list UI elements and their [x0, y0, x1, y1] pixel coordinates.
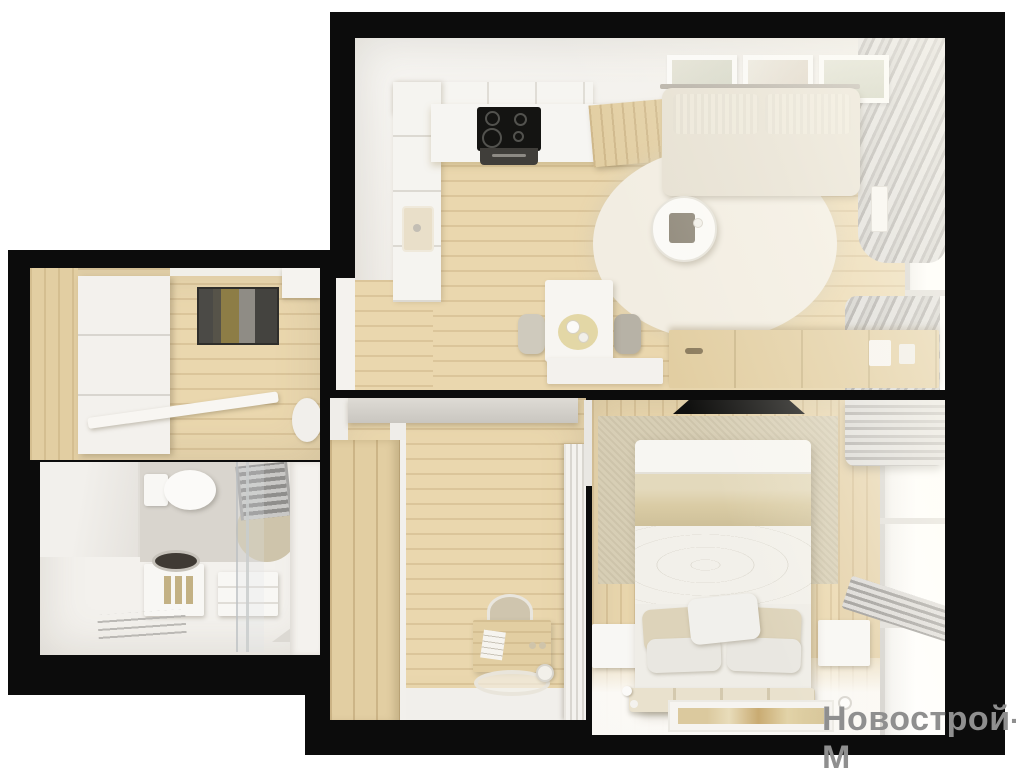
- watermark-text: Новострой-М: [822, 700, 1016, 768]
- nursery-wardrobe: [330, 440, 400, 720]
- dining-bowl: [578, 332, 589, 343]
- dining-chair-right: [614, 314, 641, 354]
- living-room-kitchen: [355, 38, 945, 390]
- floor-lamp: [536, 664, 554, 682]
- bed-pillow-gray-right: [726, 637, 801, 674]
- burner-icon: [513, 131, 524, 142]
- drying-rack: [97, 609, 187, 643]
- coffee-table-cup: [693, 218, 703, 228]
- shower-glass: [236, 462, 264, 652]
- hall-shelf: [282, 268, 320, 298]
- nightstand-right: [818, 620, 870, 666]
- bed: [635, 440, 811, 712]
- kitchen-oven: [480, 148, 538, 165]
- hallway: [30, 268, 320, 460]
- floorplan-canvas: Новострой-М: [0, 0, 1016, 768]
- desk-knob: [529, 642, 536, 649]
- bed-pillow-center: [687, 592, 761, 645]
- bedroom-wall-tv: [673, 400, 805, 414]
- slatted-door: [564, 444, 586, 720]
- hall-doormat: [197, 287, 279, 345]
- bedroom: [592, 400, 945, 735]
- coffee-table-tray: [669, 213, 695, 243]
- toilet-bowl: [164, 470, 216, 510]
- burner-icon: [485, 111, 500, 126]
- nursery-office: [330, 398, 586, 720]
- kitchen-faucet: [413, 224, 421, 232]
- burner-icon: [514, 113, 527, 126]
- console-decor: [899, 344, 915, 364]
- coffee-table: [651, 196, 717, 262]
- sofa-cushion: [673, 94, 759, 134]
- kitchen-cooktop: [477, 107, 541, 151]
- dining-placemat: [558, 314, 598, 350]
- burner-icon: [482, 128, 502, 148]
- bath-right-wall: [290, 462, 320, 655]
- dining-plate: [566, 320, 580, 334]
- decor-vase-small: [630, 700, 638, 708]
- console-decor: [869, 340, 891, 366]
- hall-living-doorway: [336, 278, 355, 390]
- bed-blanket: [635, 474, 811, 526]
- bedroom-roman-blind: [845, 400, 945, 466]
- bed-top-sheet: [635, 440, 811, 474]
- tv-console: [669, 330, 939, 388]
- vanity-bottles: [164, 576, 194, 604]
- nightstand-left: [592, 624, 640, 668]
- bathroom: [40, 462, 320, 655]
- hall-wardrobe-side: [30, 268, 78, 460]
- sofa-cushion: [765, 94, 851, 134]
- hall-door-leaf: [292, 398, 320, 442]
- nursery-corner-wall: [330, 398, 348, 440]
- desk-knob: [539, 642, 546, 649]
- console-handle: [685, 348, 703, 354]
- shower-pole: [246, 462, 249, 652]
- desk-paper: [480, 630, 506, 661]
- bed-duvet: [635, 526, 811, 604]
- nursery-wardrobe-edge: [400, 440, 406, 720]
- vanity-sink: [152, 550, 200, 572]
- dining-bench: [547, 358, 663, 384]
- desk: [473, 620, 551, 672]
- bath-left-panel: [40, 462, 140, 557]
- living-radiator: [871, 186, 888, 232]
- decor-vase: [622, 686, 632, 696]
- dining-chair-left: [518, 314, 545, 354]
- floor-rug-pattern: [678, 708, 824, 724]
- bedroom-window-transom: [880, 518, 945, 524]
- oven-handle: [492, 154, 526, 157]
- bedroom-floor-rug: [668, 700, 834, 732]
- nursery-wall-console: [348, 398, 578, 423]
